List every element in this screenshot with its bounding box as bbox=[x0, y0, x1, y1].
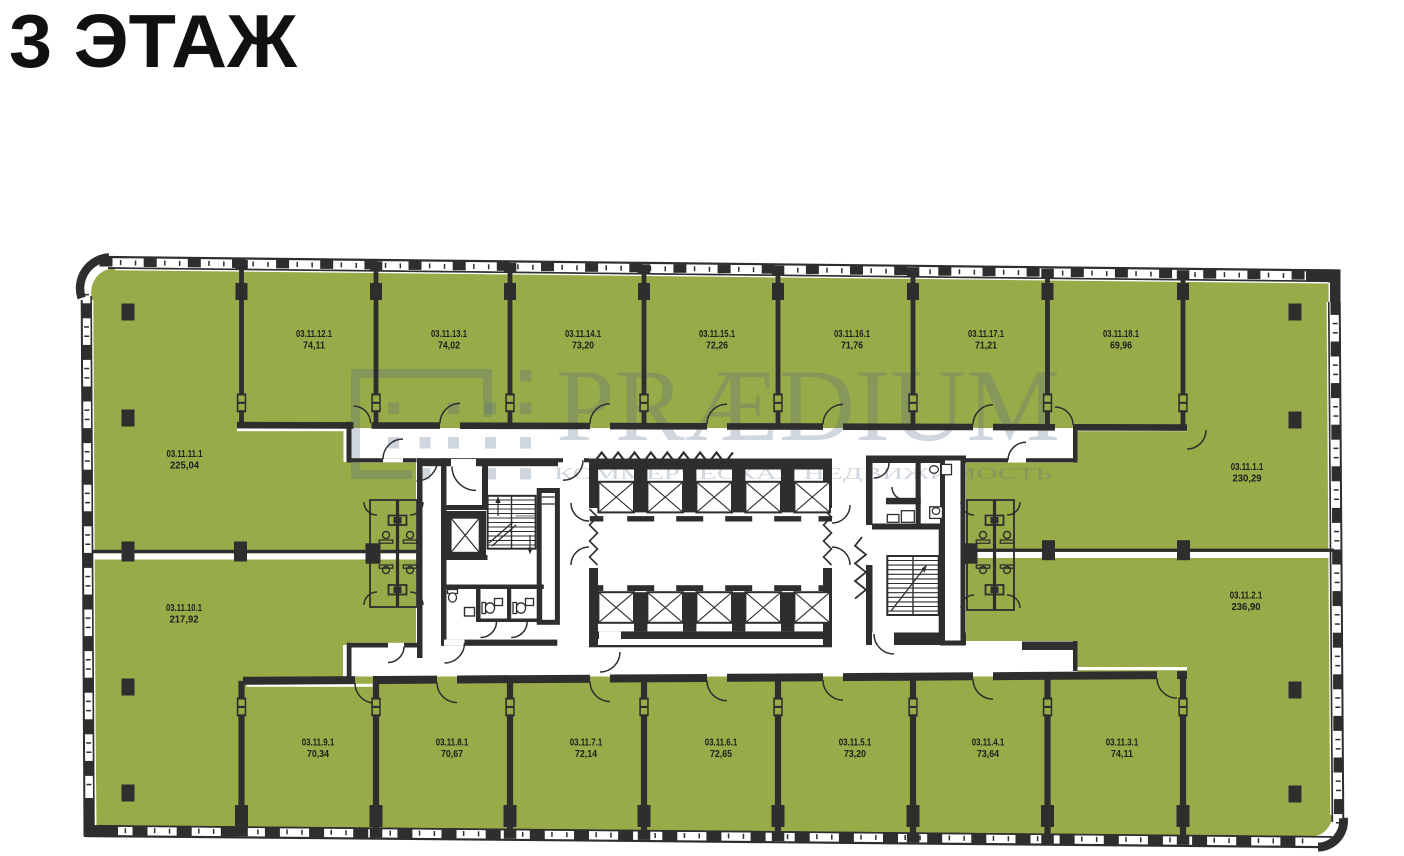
svg-text:03.11.16.1: 03.11.16.1 bbox=[834, 329, 870, 340]
svg-text:71,76: 71,76 bbox=[841, 340, 863, 351]
svg-text:69,96: 69,96 bbox=[1110, 340, 1132, 351]
svg-text:73,20: 73,20 bbox=[572, 340, 594, 351]
svg-text:225,04: 225,04 bbox=[170, 461, 200, 472]
svg-text:03.11.3.1: 03.11.3.1 bbox=[1106, 738, 1139, 749]
svg-text:217,92: 217,92 bbox=[170, 614, 200, 625]
svg-text:71,21: 71,21 bbox=[975, 340, 997, 351]
svg-text:03.11.18.1: 03.11.18.1 bbox=[1103, 329, 1139, 340]
svg-text:73,64: 73,64 bbox=[977, 749, 999, 760]
svg-text:03.11.7.1: 03.11.7.1 bbox=[570, 738, 603, 749]
svg-text:70,34: 70,34 bbox=[307, 749, 329, 760]
svg-text:03.11.11.1: 03.11.11.1 bbox=[167, 449, 203, 460]
svg-text:230,29: 230,29 bbox=[1233, 474, 1263, 485]
svg-text:03.11.5.1: 03.11.5.1 bbox=[839, 738, 872, 749]
svg-text:74,11: 74,11 bbox=[303, 340, 325, 351]
svg-text:03.11.17.1: 03.11.17.1 bbox=[968, 329, 1004, 340]
svg-text:03.11.14.1: 03.11.14.1 bbox=[565, 329, 601, 340]
svg-text:236,90: 236,90 bbox=[1232, 602, 1262, 613]
svg-text:03.11.8.1: 03.11.8.1 bbox=[436, 738, 469, 749]
svg-text:03.11.4.1: 03.11.4.1 bbox=[972, 738, 1005, 749]
svg-text:03.11.6.1: 03.11.6.1 bbox=[705, 738, 738, 749]
svg-text:03.11.15.1: 03.11.15.1 bbox=[699, 329, 735, 340]
svg-text:74,02: 74,02 bbox=[438, 340, 460, 351]
svg-text:03.11.10.1: 03.11.10.1 bbox=[166, 603, 202, 614]
svg-text:3 ЭТАЖ: 3 ЭТАЖ bbox=[9, 0, 298, 83]
svg-text:73,20: 73,20 bbox=[844, 749, 866, 760]
svg-text:03.11.13.1: 03.11.13.1 bbox=[431, 329, 467, 340]
svg-text:70,67: 70,67 bbox=[441, 749, 463, 760]
svg-text:74,11: 74,11 bbox=[1111, 749, 1133, 760]
svg-text:72,14: 72,14 bbox=[575, 749, 597, 760]
svg-text:03.11.9.1: 03.11.9.1 bbox=[302, 738, 335, 749]
svg-text:72,26: 72,26 bbox=[706, 340, 728, 351]
svg-text:03.11.2.1: 03.11.2.1 bbox=[1230, 591, 1263, 602]
svg-text:72,65: 72,65 bbox=[710, 749, 732, 760]
svg-text:03.11.1.1: 03.11.1.1 bbox=[1231, 462, 1264, 473]
svg-text:03.11.12.1: 03.11.12.1 bbox=[296, 329, 332, 340]
